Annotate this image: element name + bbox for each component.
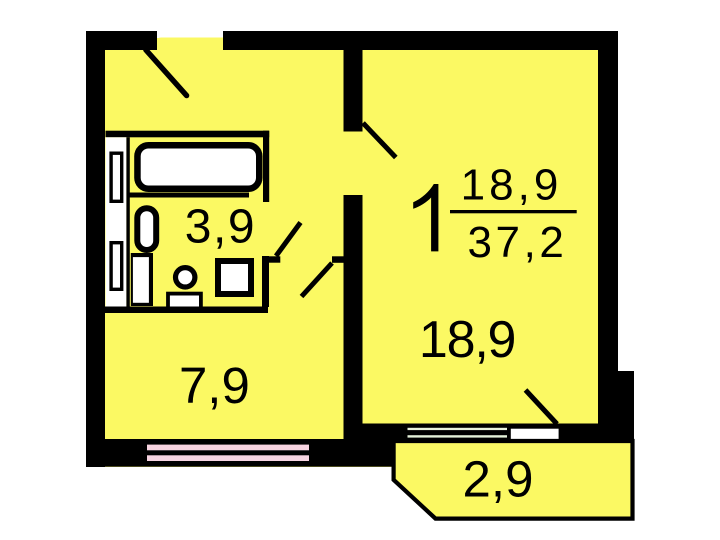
svg-text:18,9: 18,9 xyxy=(419,311,515,369)
svg-text:37,2: 37,2 xyxy=(467,218,567,267)
svg-text:3,9: 3,9 xyxy=(185,200,256,253)
svg-text:7,9: 7,9 xyxy=(179,357,250,414)
svg-text:18,9: 18,9 xyxy=(461,160,563,209)
svg-text:2,9: 2,9 xyxy=(463,451,534,508)
